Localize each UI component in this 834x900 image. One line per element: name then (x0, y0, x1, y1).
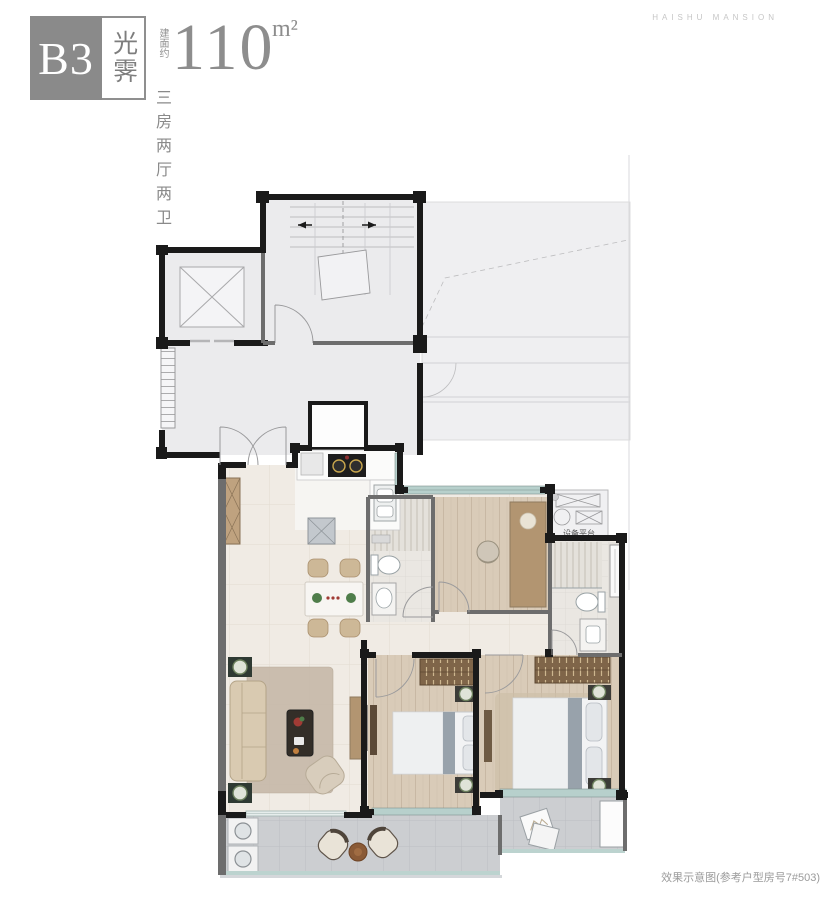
unit-name: 光霁 (102, 16, 146, 100)
area-prefix: 建面约 (156, 28, 168, 58)
brand-name: HAISHU MANSION (652, 13, 778, 22)
area-unit: m² (272, 16, 298, 43)
vent-louver (161, 348, 175, 428)
master-bath-shower-zone (552, 542, 602, 588)
shoe-cabinet (224, 478, 240, 544)
floorplan-page: B3 光霁 建面约 110 m² 三房两厅两卫 HAISHU MANSION 效… (0, 0, 834, 900)
master-tv-bench (484, 710, 492, 762)
equipment-platform: 设备平台 (550, 490, 608, 538)
footer-note: 效果示意图(参考户型房号7#503) (661, 869, 820, 885)
duct-shaft (310, 403, 366, 449)
unit-code: B3 (30, 16, 102, 100)
unit-floors: 设备平台 (222, 403, 625, 873)
bedroom2-dresser (370, 705, 377, 755)
coffee-table (287, 710, 313, 756)
sofa (230, 681, 266, 781)
floorplan-drawing: 设备平台 (150, 145, 645, 880)
kitchen-module (301, 453, 323, 475)
unit-badge: B3 光霁 (30, 16, 146, 100)
balcony-door-panel (600, 801, 626, 847)
area-value: 110 (172, 10, 275, 86)
